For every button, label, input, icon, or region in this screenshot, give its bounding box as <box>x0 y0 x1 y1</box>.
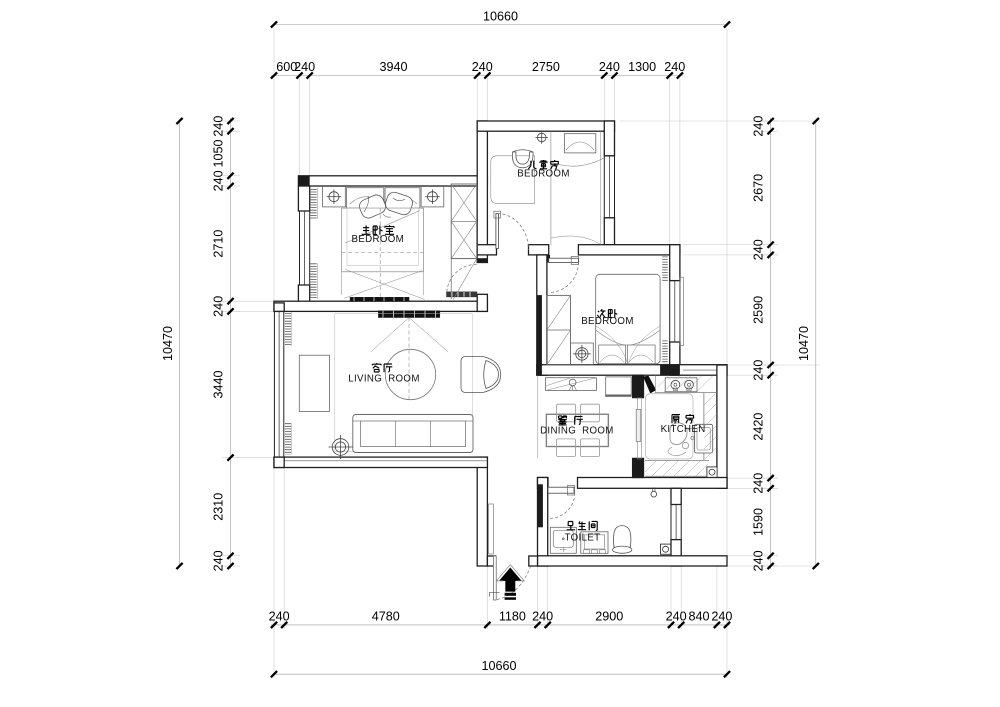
svg-text:240: 240 <box>711 610 732 624</box>
svg-text:1180: 1180 <box>499 610 526 624</box>
svg-text:2590: 2590 <box>751 296 765 324</box>
svg-text:2310: 2310 <box>211 493 225 521</box>
svg-text:240: 240 <box>666 610 687 624</box>
svg-text:2670: 2670 <box>751 174 765 202</box>
svg-text:1050: 1050 <box>211 139 225 167</box>
svg-text:3440: 3440 <box>211 370 225 398</box>
svg-text:4780: 4780 <box>372 610 400 624</box>
svg-text:3940: 3940 <box>379 60 407 74</box>
svg-text:240: 240 <box>751 360 765 381</box>
svg-text:DINING ROOM: DINING ROOM <box>540 425 614 436</box>
svg-text:LIVING ROOM: LIVING ROOM <box>348 374 419 385</box>
svg-text:240: 240 <box>269 610 290 624</box>
svg-text:10470: 10470 <box>161 326 175 361</box>
svg-text:240: 240 <box>211 550 225 571</box>
svg-text:10660: 10660 <box>483 9 518 23</box>
svg-text:KITCHEN: KITCHEN <box>661 424 706 435</box>
svg-text:240: 240 <box>472 60 493 74</box>
svg-text:BEDROOM: BEDROOM <box>581 316 634 327</box>
svg-text:2420: 2420 <box>751 413 765 441</box>
svg-text:1300: 1300 <box>628 60 656 74</box>
svg-text:BEDROOM: BEDROOM <box>352 234 405 245</box>
svg-text:240: 240 <box>532 610 553 624</box>
svg-text:10470: 10470 <box>797 326 811 361</box>
svg-text:240: 240 <box>664 60 685 74</box>
svg-text:840: 840 <box>688 610 709 624</box>
svg-text:BEDROOM: BEDROOM <box>517 168 570 179</box>
svg-text:1590: 1590 <box>751 508 765 536</box>
svg-text:10660: 10660 <box>481 659 516 673</box>
svg-text:240: 240 <box>294 60 315 74</box>
svg-text:240: 240 <box>599 60 620 74</box>
svg-text:2900: 2900 <box>595 610 623 624</box>
svg-text:2750: 2750 <box>532 60 560 74</box>
svg-text:240: 240 <box>211 296 225 317</box>
svg-text:240: 240 <box>211 170 225 191</box>
svg-text:240: 240 <box>211 116 225 137</box>
svg-text:240: 240 <box>751 239 765 260</box>
svg-text:240: 240 <box>751 116 765 137</box>
svg-text:TOILET: TOILET <box>565 532 601 543</box>
svg-text:240: 240 <box>751 473 765 494</box>
svg-text:240: 240 <box>751 550 765 571</box>
svg-text:2710: 2710 <box>211 230 225 258</box>
